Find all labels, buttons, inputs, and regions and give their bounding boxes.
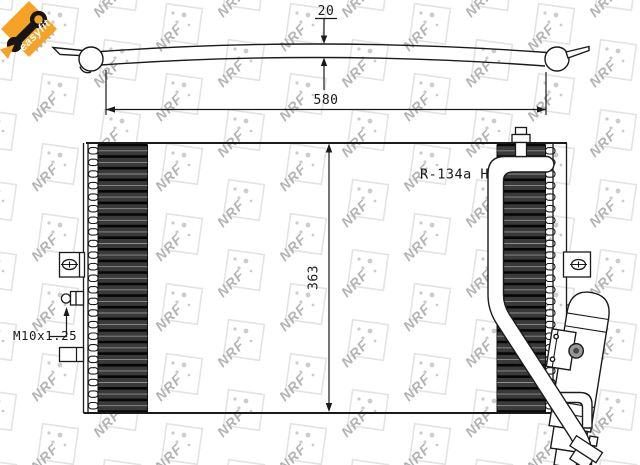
side-view-right-tab (566, 47, 589, 59)
refrigerant-label: R-134a HP (420, 167, 498, 183)
tube-loop (89, 194, 99, 200)
nrf-watermark-tile: NRF (400, 74, 451, 124)
nrf-watermark-tile: NRF (586, 0, 637, 20)
nrf-watermark-text: NRF (276, 160, 310, 194)
nrf-watermark-text: NRF (338, 196, 372, 230)
nrf-watermark-tile: NRF (400, 284, 451, 334)
nrf-watermark-text: NRF (586, 126, 620, 160)
nrf-watermark-text: NRF (152, 160, 186, 194)
nrf-watermark-tile: NRF (276, 424, 327, 465)
nrf-watermark-text: NRF (338, 336, 372, 370)
nrf-watermark-tile: NRF (214, 390, 265, 440)
nrf-watermark-tile: NRF (152, 144, 203, 194)
tube-loop (89, 403, 99, 409)
side-view-left-pipe-end (79, 47, 103, 71)
nrf-watermark-tile: NRF (214, 460, 265, 465)
thread-fitting-bolt (61, 292, 83, 306)
nrf-watermark-tile: NRF (338, 250, 389, 300)
tube-loop (89, 229, 99, 235)
nrf-watermark-tile: NRF (28, 144, 79, 194)
tube-loop (89, 333, 99, 339)
nrf-watermark-text: NRF (400, 300, 434, 334)
nrf-watermark-tile: NRF (338, 460, 389, 465)
right-mounting-bracket (564, 252, 591, 277)
nrf-watermark-text: NRF (214, 266, 248, 300)
tube-loop (89, 275, 99, 281)
nrf-watermark-tile: NRF (214, 0, 265, 20)
nrf-watermark-tile: NRF (586, 180, 637, 230)
nrf-watermark-text: NRF (28, 370, 62, 404)
nrf-watermark-text: NRF (586, 196, 620, 230)
nrf-watermark-tile: NRF (338, 110, 389, 160)
nrf-watermark-text: NRF (338, 0, 372, 20)
nrf-watermark-tile: NRF (586, 40, 637, 90)
nrf-watermark-tile: NRF (338, 0, 389, 20)
tube-loop (89, 298, 99, 304)
nrf-watermark-tile: NRF (276, 214, 327, 264)
nrf-watermark-text: NRF (214, 196, 248, 230)
tube-loop (89, 368, 99, 374)
nrf-watermark-text: NRF (462, 406, 496, 440)
nrf-watermark-tile: NRF (152, 354, 203, 404)
nrf-watermark-tile: NRF (28, 74, 79, 124)
nrf-watermark-text: NRF (152, 90, 186, 124)
nrf-watermark-tile: NRF (152, 284, 203, 334)
nrf-watermark-tile: NRF (0, 460, 16, 465)
nrf-watermark-text: NRF (152, 370, 186, 404)
tube-loop (89, 159, 99, 165)
nrf-watermark-text: NRF (462, 0, 496, 20)
nrf-watermark-tile: NRF (462, 460, 513, 465)
nrf-watermark-text: NRF (214, 406, 248, 440)
tube-loop (89, 217, 99, 223)
nrf-watermark-text: NRF (276, 370, 310, 404)
tube-loop (89, 240, 99, 246)
dim-thickness-label: 20 (318, 4, 335, 19)
nrf-watermark-tile: NRF (400, 214, 451, 264)
tube-loop (89, 379, 99, 385)
nrf-watermark-text: NRF (400, 90, 434, 124)
catalog-drawing-page: NRFNRFNRFNRFNRFNRFNRFNRFNRFNRFNRFNRFNRFN… (0, 0, 640, 465)
nrf-watermark-text: NRF (90, 0, 124, 20)
nrf-watermark-tile: NRF (276, 284, 327, 334)
nrf-watermark-text: NRF (338, 56, 372, 90)
nrf-watermark-tile: NRF (0, 110, 16, 160)
nrf-watermark-text: NRF (400, 370, 434, 404)
nrf-watermark-tile: NRF (152, 214, 203, 264)
nrf-watermark-tile: NRF (214, 110, 265, 160)
left-side-rail (84, 143, 89, 413)
tube-loop (89, 148, 99, 154)
nrf-watermark-tile: NRF (28, 424, 79, 465)
nrf-watermark-text: NRF (400, 230, 434, 264)
nrf-watermark-tile: NRF (90, 0, 141, 20)
nrf-watermark-text: NRF (214, 0, 248, 20)
nrf-watermark-text: NRF (276, 300, 310, 334)
nrf-watermark-tile: NRF (0, 250, 16, 300)
tube-loop (89, 287, 99, 293)
nrf-watermark-text: NRF (28, 90, 62, 124)
nrf-watermark-text: NRF (586, 56, 620, 90)
nrf-watermark-text: NRF (338, 266, 372, 300)
nrf-watermark-text: NRF (400, 20, 434, 54)
nrf-watermark-tile: NRF (0, 180, 16, 230)
thread-label: M10x1.25 (13, 328, 77, 343)
nrf-watermark-text: NRF (276, 230, 310, 264)
nrf-watermark-text: NRF (152, 230, 186, 264)
nrf-watermark-text: NRF (276, 90, 310, 124)
nrf-watermark-tile: NRF (338, 320, 389, 370)
tube-loop (89, 252, 99, 258)
nrf-watermark-tile: NRF (152, 74, 203, 124)
nrf-watermark-text: NRF (28, 160, 62, 194)
nrf-watermark-tile: NRF (400, 424, 451, 465)
tube-loop (89, 264, 99, 270)
nrf-watermark-tile: NRF (524, 74, 575, 124)
nrf-watermark-text: NRF (214, 56, 248, 90)
tube-loop (89, 310, 99, 316)
dim-width-label: 580 (314, 93, 339, 108)
nrf-watermark-tile: NRF (90, 460, 141, 465)
nrf-watermark-tile: NRF (338, 180, 389, 230)
tube-loop (89, 171, 99, 177)
nrf-watermark-tile: NRF (276, 354, 327, 404)
nrf-watermark-text: NRF (276, 20, 310, 54)
nrf-watermark-tile: NRF (338, 40, 389, 90)
nrf-watermark-tile: NRF (152, 424, 203, 465)
tube-loop (89, 182, 99, 188)
nrf-watermark-tile: NRF (214, 320, 265, 370)
nrf-watermark-text: NRF (462, 336, 496, 370)
nrf-watermark-tile: NRF (214, 250, 265, 300)
side-view-right-pipe-end (545, 47, 569, 71)
dim-height-label: 363 (307, 265, 322, 290)
nrf-watermark-tile: NRF (524, 4, 575, 54)
tube-loop (89, 321, 99, 327)
nrf-watermark-tile: NRF (400, 354, 451, 404)
nrf-watermark-text: NRF (152, 20, 186, 54)
left-lower-tab (60, 348, 84, 362)
condenser-technical-drawing: NRFNRFNRFNRFNRFNRFNRFNRFNRFNRFNRFNRFNRFN… (0, 0, 640, 465)
tube-loop (89, 391, 99, 397)
nrf-watermark-text: NRF (338, 406, 372, 440)
nrf-watermark-text: NRF (524, 90, 558, 124)
nrf-watermark-text: NRF (214, 336, 248, 370)
nrf-watermark-text: NRF (586, 0, 620, 20)
nrf-watermark-tile: NRF (0, 390, 16, 440)
nrf-watermark-text: NRF (28, 230, 62, 264)
nrf-watermark-tile: NRF (338, 390, 389, 440)
nrf-watermark-text: NRF (152, 300, 186, 334)
nrf-watermark-tile: NRF (214, 40, 265, 90)
nrf-watermark-tile: NRF (276, 144, 327, 194)
tube-loop (89, 345, 99, 351)
tube-loop (89, 206, 99, 212)
nrf-watermark-tile: NRF (214, 180, 265, 230)
nrf-watermark-tile: NRF (586, 110, 637, 160)
left-mounting-bracket (60, 253, 85, 278)
nrf-watermark-tile: NRF (462, 0, 513, 20)
tube-loop (89, 356, 99, 362)
